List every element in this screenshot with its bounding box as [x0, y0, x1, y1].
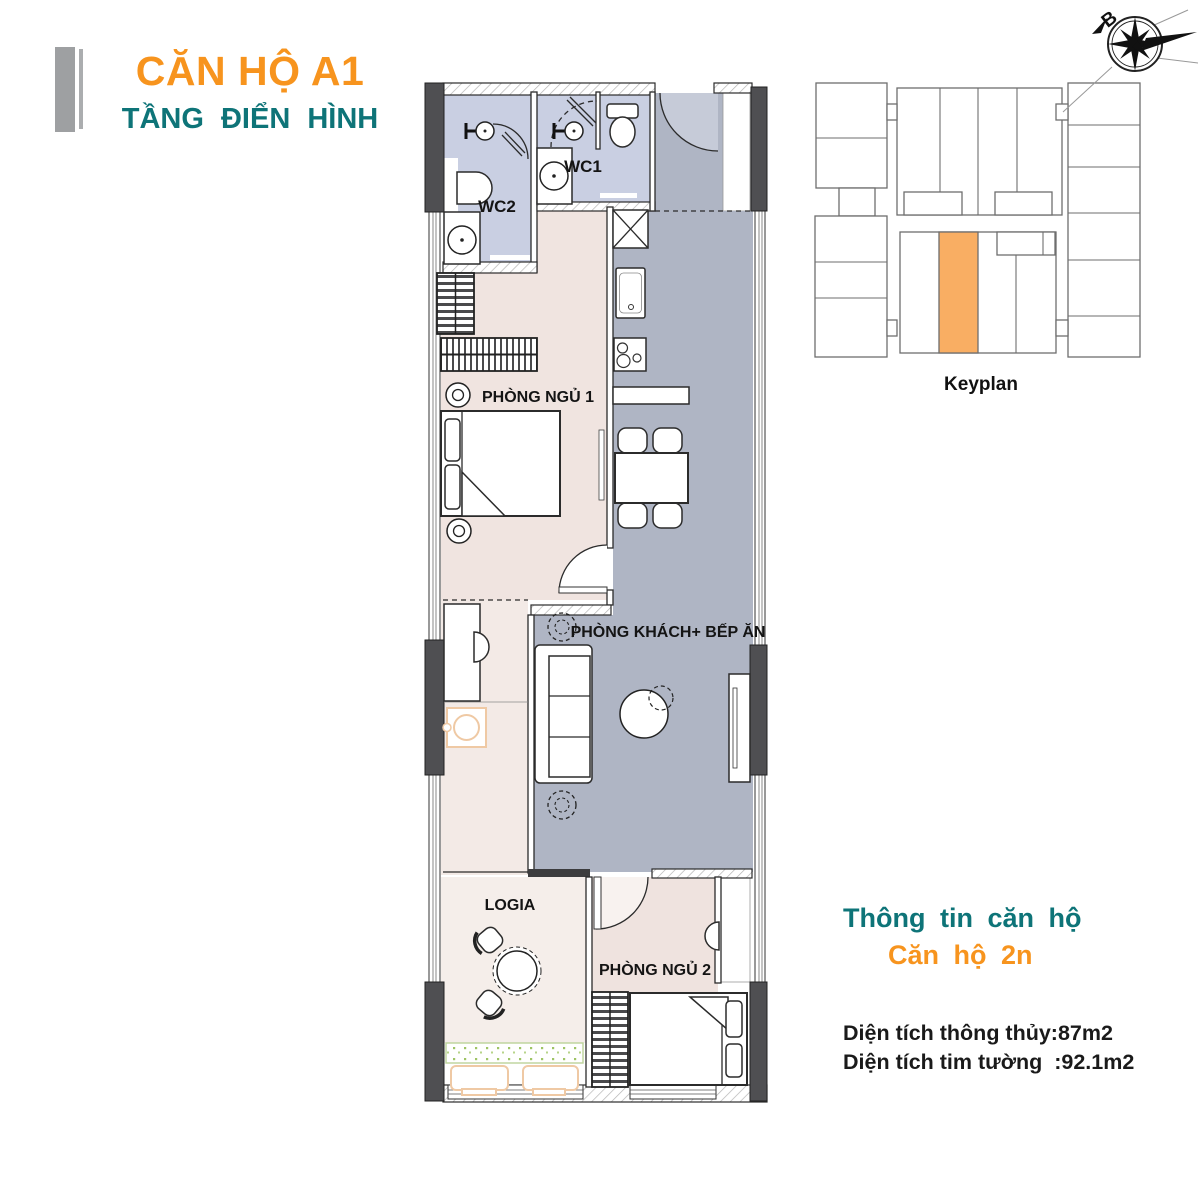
keyplan-block — [816, 83, 887, 188]
info-unit-type: Căn hộ 2n — [888, 940, 1183, 971]
wardrobe — [437, 273, 474, 334]
wall-bedroom1-bottom — [531, 605, 611, 615]
room-label-wc1: WC1 — [564, 157, 602, 176]
window-right-upper — [755, 211, 765, 645]
wall-wc1-right — [650, 92, 655, 211]
keyplan: Keyplan — [815, 83, 1140, 395]
room-label-bedroom2: PHÒNG NGỦ 2 — [599, 960, 711, 979]
column-bottom-left — [425, 982, 444, 1101]
wall-bedroom1-right — [607, 207, 613, 548]
entry-niche — [723, 93, 750, 211]
kitchen-sink-icon — [616, 268, 645, 318]
sliding-panel — [599, 430, 604, 500]
wall-living-bedroom2 — [652, 869, 752, 878]
keyplan-block — [815, 216, 887, 357]
planter-box — [523, 1066, 578, 1095]
column-top-left — [425, 83, 444, 212]
column-top-right — [751, 87, 767, 211]
bedroom2-niche — [721, 877, 750, 982]
column-mid-right — [750, 645, 767, 775]
wall-wc2-right — [531, 92, 537, 272]
column-bottom-right — [750, 982, 767, 1101]
single-bed — [630, 993, 747, 1085]
info-areas: Diện tích thông thủy:87m2 Diện tích tim … — [843, 1019, 1183, 1077]
washing-machine-icon — [443, 708, 486, 747]
planter-box — [451, 1066, 508, 1095]
tv-console — [729, 674, 750, 782]
wardrobe — [592, 992, 628, 1087]
area-gross: Diện tích tim tường :92.1m2 — [843, 1048, 1183, 1077]
chair — [653, 428, 682, 453]
wall-top — [443, 83, 655, 95]
window-left-lower — [429, 775, 440, 982]
floor-plan: WC1 WC2 PHÒNG NGỦ 1 PHÒNG KHÁCH+ BẾP ĂN … — [425, 83, 767, 1102]
sofa — [535, 645, 592, 783]
keyplan-label: Keyplan — [944, 374, 1018, 395]
stove-icon — [614, 338, 646, 371]
area-net: Diện tích thông thủy:87m2 — [843, 1019, 1183, 1048]
pillow — [445, 465, 460, 509]
towel-bar — [600, 193, 637, 198]
balcony-table-icon — [493, 947, 541, 995]
kitchen-counter — [613, 387, 689, 404]
keyplan-block — [839, 188, 875, 216]
toilet-icon — [607, 104, 638, 147]
wardrobe — [441, 338, 537, 371]
chair — [618, 503, 647, 528]
chair — [618, 428, 647, 453]
planter-strip — [446, 1043, 583, 1063]
pillow — [726, 1044, 742, 1077]
wall-living-logia — [528, 869, 590, 877]
ceiling-light-icon — [447, 519, 471, 543]
pillow — [445, 419, 460, 461]
keyplan-highlighted-unit — [939, 232, 978, 353]
window-bottom-bedroom2 — [630, 1085, 716, 1099]
double-bed — [441, 411, 560, 516]
room-label-living: PHÒNG KHÁCH+ BẾP ĂN — [571, 622, 766, 641]
unit-info-block: Thông tin căn hộ Căn hộ 2n Diện tích thô… — [843, 903, 1183, 1077]
window-right-lower — [755, 775, 765, 982]
wall-bedroom1-stub — [607, 590, 613, 605]
page: CĂN HỘ A1 TẦNG ĐIỂN HÌNH — [0, 0, 1200, 1201]
pillow — [726, 1001, 742, 1037]
wall-logia-bedroom2 — [586, 877, 592, 1087]
room-label-logia: LOGIA — [485, 897, 536, 914]
dining-table — [615, 453, 688, 503]
column-mid-left — [425, 640, 444, 775]
wall-top-right — [714, 83, 752, 93]
wall-living-left — [528, 615, 534, 873]
info-title: Thông tin căn hộ — [843, 903, 1183, 934]
chair — [653, 503, 682, 528]
ceiling-light-icon — [446, 383, 470, 407]
room-label-bedroom1: PHÒNG NGỦ 1 — [482, 387, 594, 406]
towel-bar — [490, 255, 530, 260]
sink-icon — [448, 226, 476, 254]
kitchen-cabinet — [613, 210, 648, 248]
room-label-wc2: WC2 — [478, 197, 516, 216]
